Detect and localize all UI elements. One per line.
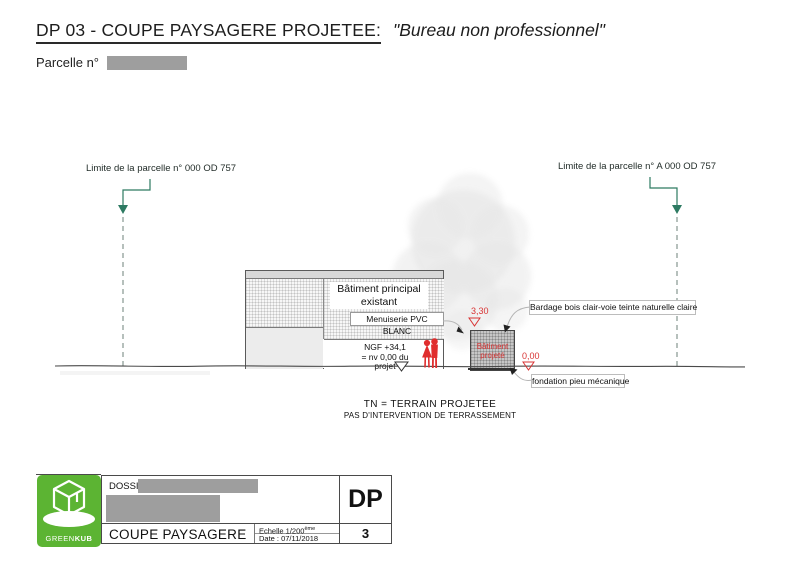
- ngf-line1: NGF +34,1: [364, 342, 406, 352]
- page-title-quote: "Bureau non professionnel": [393, 20, 605, 40]
- menuiserie-callout: Menuiserie PVC BLANC: [350, 312, 444, 326]
- ground-shading: [60, 371, 210, 375]
- leader-arrow-left-icon: [457, 327, 465, 334]
- scale-value: Echelle 1/200ème: [255, 524, 340, 534]
- scale-sup: ème: [304, 526, 315, 532]
- parcel-limit-right-marker: [650, 177, 677, 205]
- sheet-number: 3: [340, 524, 391, 543]
- parcel-limit-right-label: Limite de la parcelle n° A 000 OD 757: [558, 161, 716, 172]
- drawing-title: COUPE PAYSAGERE: [109, 527, 247, 542]
- existing-building-label-line1: Bâtiment principal: [337, 283, 420, 295]
- parcel-number-row: Parcelle n°: [36, 55, 187, 70]
- projected-building: Bâtiment projeté: [470, 330, 515, 371]
- page-title: DP 03 - COUPE PAYSAGERE PROJETEE:"Bureau…: [36, 20, 605, 41]
- titleblock-table: DOSSIER M. COUPE PAYSAGERE Echelle 1/200…: [101, 475, 392, 544]
- existing-building-roof: [246, 271, 443, 279]
- date-value: Date : 07/11/2018: [255, 534, 340, 543]
- parcel-limit-left-marker: [123, 179, 150, 205]
- ngf-level-note: NGF +34,1 = nv 0,00 du projet: [350, 343, 420, 372]
- ngf-line2: = nv 0,00 du projet: [361, 352, 408, 372]
- titleblock-title-row: COUPE PAYSAGERE Echelle 1/200ème Date : …: [102, 524, 339, 543]
- redacted-dossier-name: [138, 479, 258, 493]
- existing-building-label: Bâtiment principal existant: [330, 282, 428, 309]
- parcel-limit-right-arrow-icon: [672, 205, 682, 214]
- greenkub-logo: GREENKUB: [37, 475, 101, 547]
- drawing-sheet: DP 03 - COUPE PAYSAGERE PROJETEE:"Bureau…: [0, 0, 800, 563]
- terrain-note-line2: PAS D'INTERVENTION DE TERRASSEMENT: [280, 411, 580, 420]
- greenkub-cube-icon: [37, 475, 101, 533]
- projected-building-label-line2: projeté: [480, 351, 504, 360]
- level-000-triangle-icon: [523, 362, 534, 370]
- terrain-note: TN = TERRAIN PROJETEE PAS D'INTERVENTION…: [280, 399, 580, 420]
- level-top-value: 3,30: [471, 306, 489, 316]
- terrain-note-line1: TN = TERRAIN PROJETEE: [280, 399, 580, 410]
- level-ground-value: 0,00: [522, 351, 540, 361]
- existing-building: Bâtiment principal existant Menuiserie P…: [245, 270, 444, 369]
- level-330-triangle-icon: [469, 318, 480, 326]
- leader-curve-left: [443, 321, 462, 330]
- redacted-dossier-address: [106, 495, 220, 522]
- projected-building-label-line1: Bâtiment: [477, 342, 509, 351]
- parcel-label: Parcelle n°: [36, 55, 99, 70]
- existing-building-base-left: [246, 327, 323, 369]
- scale-date-cell: Echelle 1/200ème Date : 07/11/2018: [254, 524, 340, 543]
- greenkub-logo-text: GREENKUB: [37, 534, 101, 543]
- page-title-main: DP 03 - COUPE PAYSAGERE PROJETEE:: [36, 20, 381, 44]
- parcel-limit-left-arrow-icon: [118, 205, 128, 214]
- doc-type-column: DP 3: [339, 476, 391, 543]
- leader-curve-fondation: [514, 372, 532, 380]
- projected-building-label: Bâtiment projeté: [477, 342, 509, 360]
- existing-building-wall-left: [246, 279, 323, 327]
- redacted-parcel-number: [107, 56, 187, 70]
- logo-text-kub: KUB: [75, 534, 93, 543]
- logo-text-green: GREEN: [46, 534, 75, 543]
- titleblock-dossier-cell: DOSSIER M.: [102, 476, 339, 524]
- parcel-limit-left-label: Limite de la parcelle n° 000 OD 757: [86, 163, 236, 174]
- existing-building-label-line2: existant: [361, 296, 397, 308]
- leader-curve-bardage: [507, 307, 530, 327]
- fondation-callout: fondation pieu mécanique: [531, 374, 625, 388]
- doc-type-label: DP: [340, 476, 391, 524]
- bardage-callout: Bardage bois clair-voie teinte naturelle…: [529, 300, 696, 315]
